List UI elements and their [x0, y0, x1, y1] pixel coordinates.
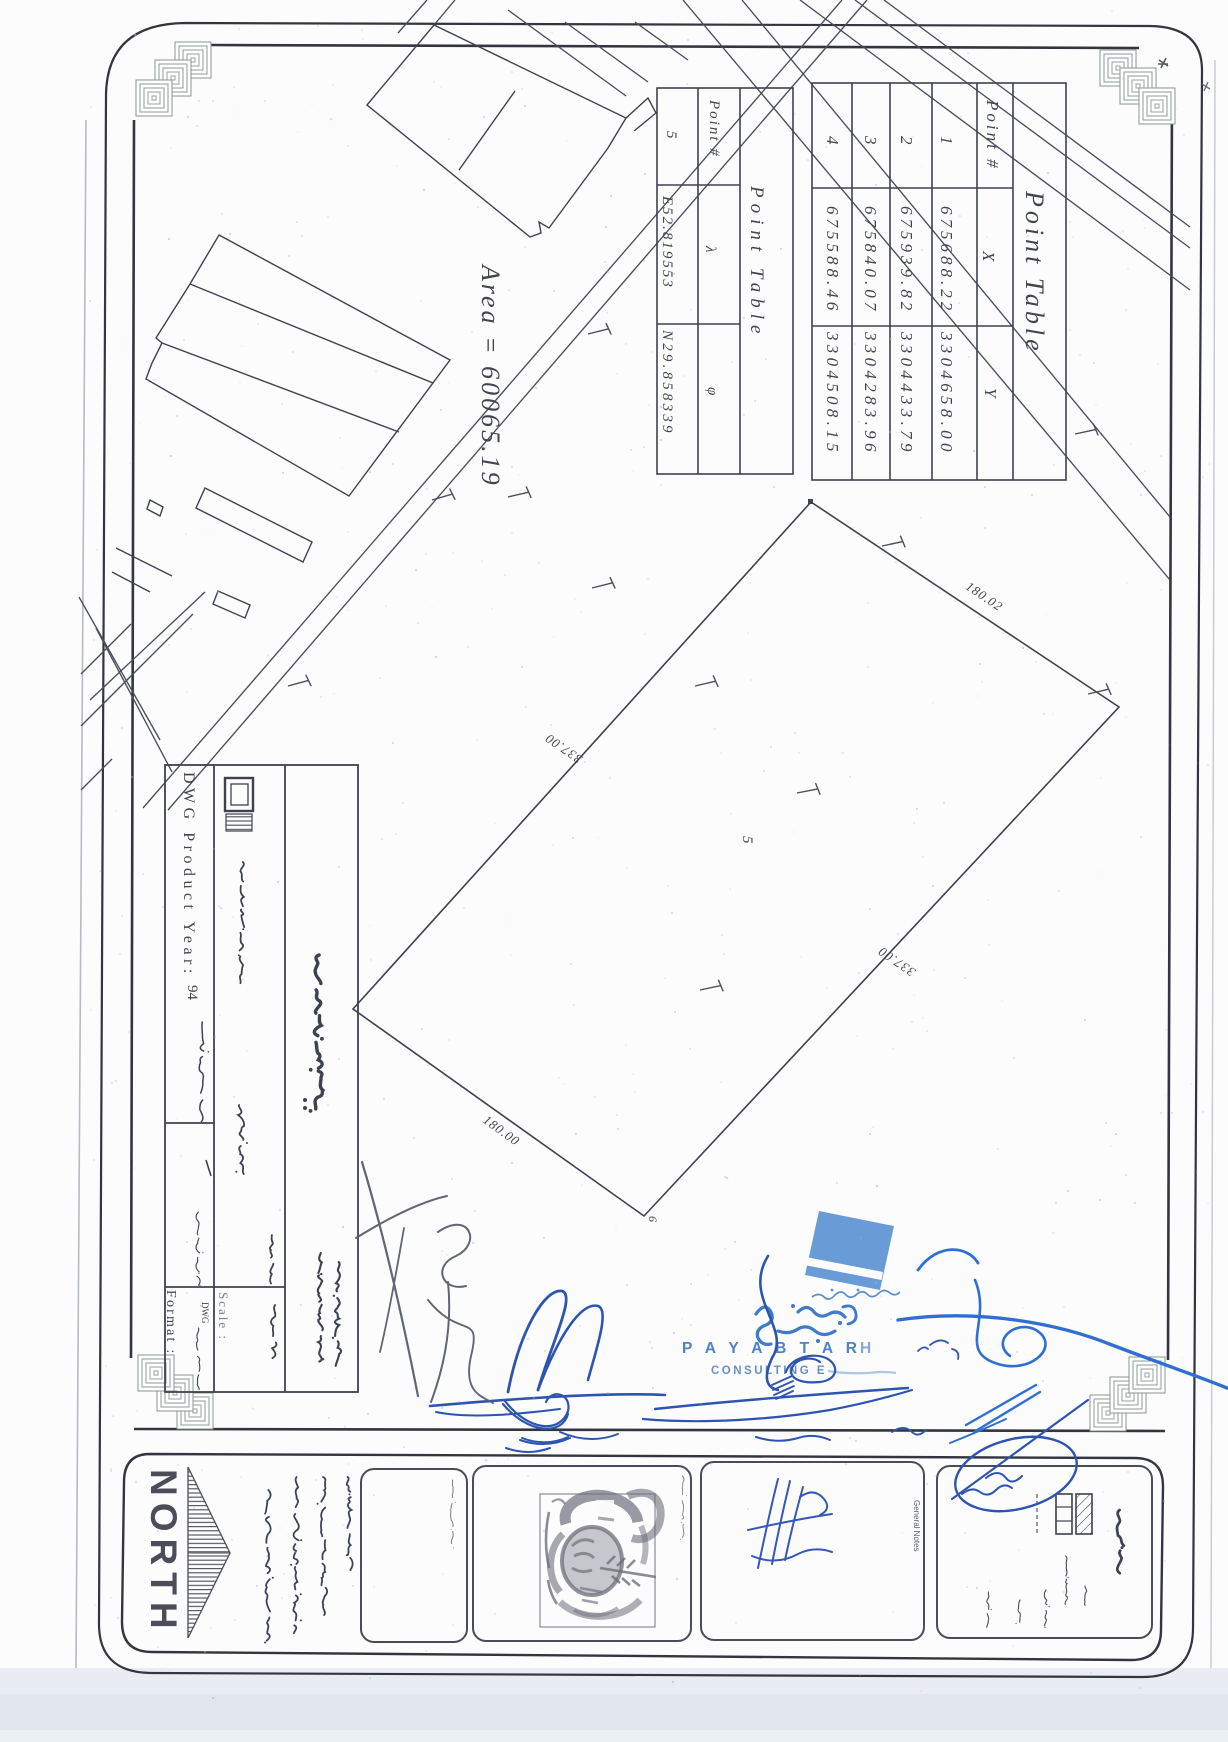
svg-text:675588.46: 675588.46	[823, 206, 842, 314]
svg-text:DWG Product Year:: DWG Product Year:	[180, 772, 197, 978]
svg-text:E52.819553: E52.819553	[659, 195, 675, 289]
svg-text:675688.22: 675688.22	[937, 206, 956, 314]
svg-text:4: 4	[823, 136, 842, 145]
svg-text:λ: λ	[702, 245, 718, 253]
svg-text:1: 1	[937, 136, 956, 145]
svg-text:Point Table: Point Table	[746, 185, 767, 339]
svg-text:675939.82: 675939.82	[897, 206, 916, 314]
svg-text:N29.858339: N29.858339	[659, 329, 675, 436]
svg-text:P A Y A B T A R: P A Y A B T A R	[682, 1340, 861, 1357]
svg-text:Scale :: Scale :	[216, 1292, 231, 1341]
svg-text:Area = 60065.19: Area = 60065.19	[476, 263, 505, 488]
svg-text:Point #: Point #	[706, 99, 722, 158]
svg-text:Point Table: Point Table	[1020, 190, 1049, 355]
svg-text:Point #: Point #	[983, 99, 1002, 171]
svg-text:3304433.79: 3304433.79	[897, 331, 916, 456]
svg-text:94: 94	[184, 985, 200, 1001]
svg-text:X: X	[979, 250, 998, 262]
svg-text:675840.07: 675840.07	[861, 206, 880, 314]
svg-text:H: H	[860, 1340, 872, 1357]
svg-text:3: 3	[861, 135, 880, 145]
svg-text:5: 5	[739, 836, 755, 844]
svg-text:3304508.15: 3304508.15	[823, 331, 842, 456]
svg-text:φ: φ	[704, 387, 720, 395]
svg-text:3304283.96: 3304283.96	[861, 331, 880, 456]
svg-text:General Notes: General Notes	[912, 1500, 921, 1552]
svg-text:Y: Y	[981, 388, 1000, 399]
svg-text:Format :: Format :	[163, 1290, 178, 1355]
svg-text:NORTH: NORTH	[143, 1469, 184, 1636]
svg-text:6: 6	[646, 1216, 660, 1222]
svg-text:3304658.00: 3304658.00	[937, 331, 956, 456]
